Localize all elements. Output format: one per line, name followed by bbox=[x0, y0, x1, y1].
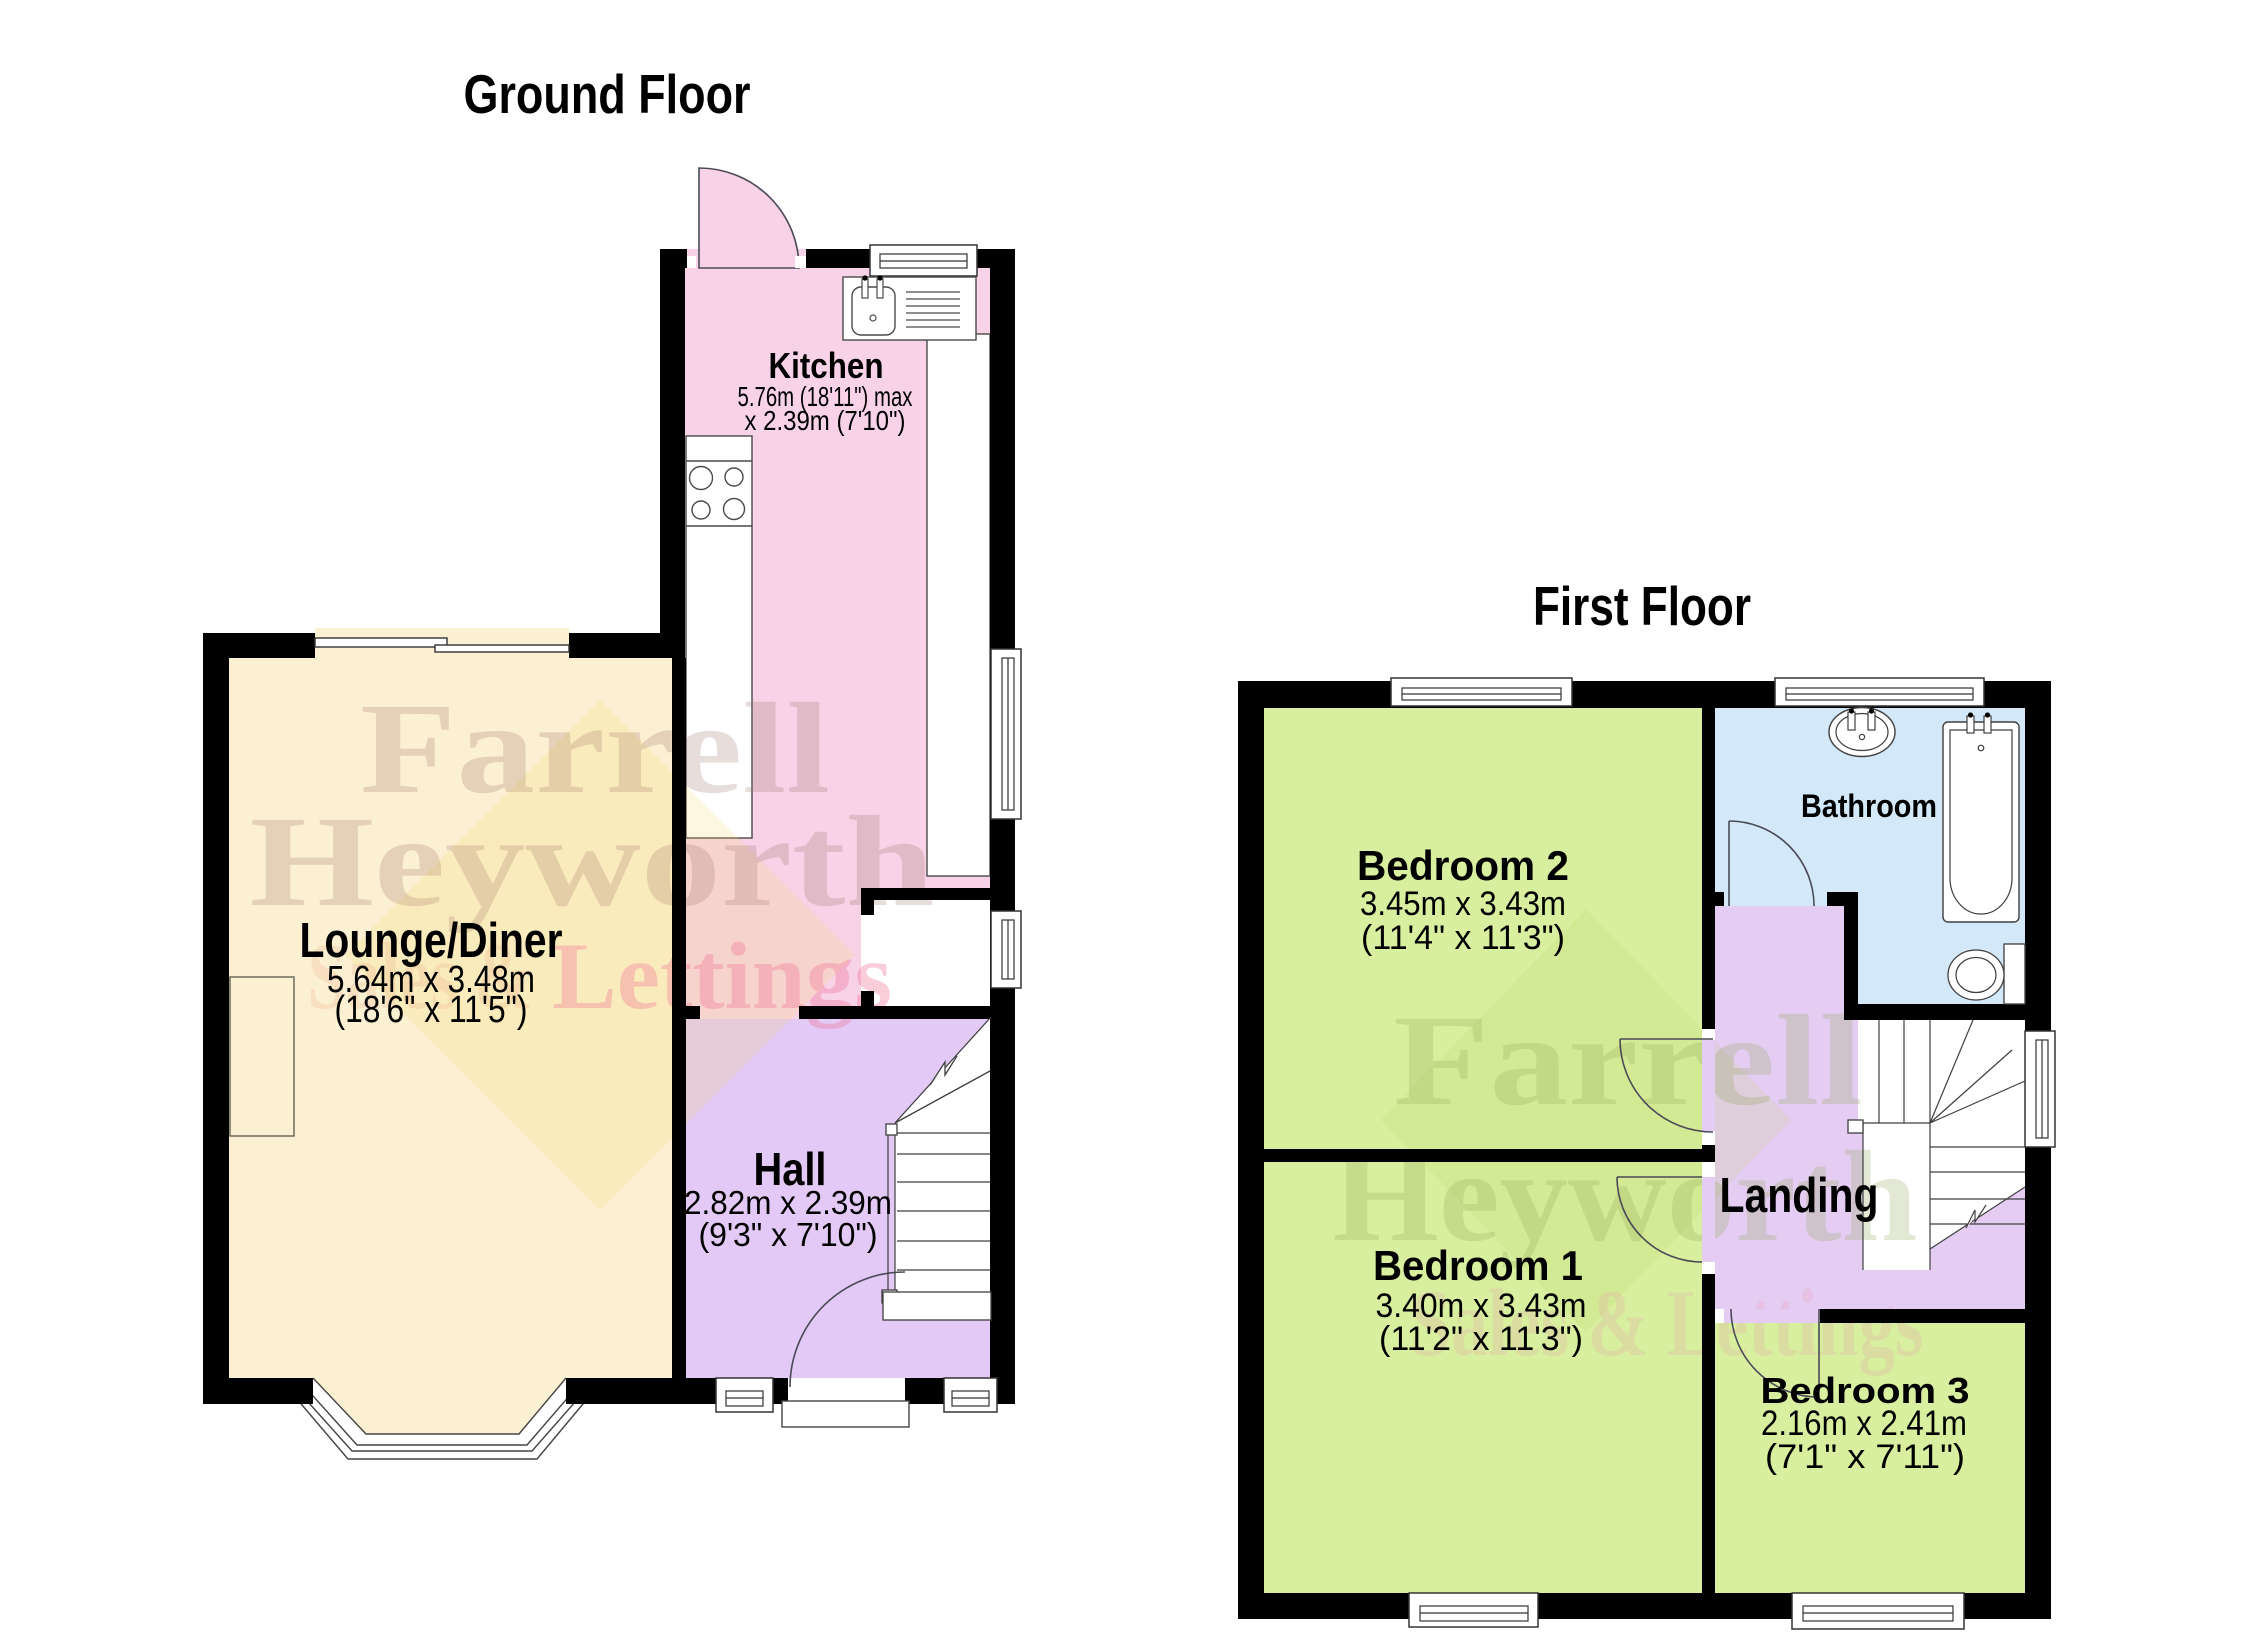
svg-text:Bedroom 2: Bedroom 2 bbox=[1357, 842, 1569, 889]
svg-text:Landing: Landing bbox=[1720, 1169, 1879, 1223]
svg-text:3.45m x 3.43m: 3.45m x 3.43m bbox=[1360, 885, 1566, 923]
svg-text:Farrell: Farrell bbox=[1393, 989, 1863, 1133]
svg-text:(18'6" x 11'5"): (18'6" x 11'5") bbox=[335, 989, 528, 1031]
svg-text:Ground Floor: Ground Floor bbox=[464, 63, 751, 125]
svg-text:Bathroom: Bathroom bbox=[1801, 788, 1937, 824]
svg-text:Kitchen: Kitchen bbox=[769, 345, 884, 386]
svg-text:Heyworth: Heyworth bbox=[250, 790, 935, 934]
svg-text:Bedroom 1: Bedroom 1 bbox=[1373, 1242, 1583, 1289]
svg-text:(9'3" x 7'10"): (9'3" x 7'10") bbox=[699, 1216, 878, 1253]
svg-text:(11'4" x 11'3"): (11'4" x 11'3") bbox=[1361, 919, 1565, 957]
svg-text:First Floor: First Floor bbox=[1533, 575, 1751, 637]
svg-text:(11'2" x 11'3"): (11'2" x 11'3") bbox=[1379, 1320, 1583, 1358]
svg-text:(7'1" x 7'11"): (7'1" x 7'11") bbox=[1765, 1438, 1965, 1476]
svg-text:x 2.39m (7'10"): x 2.39m (7'10") bbox=[745, 405, 906, 436]
